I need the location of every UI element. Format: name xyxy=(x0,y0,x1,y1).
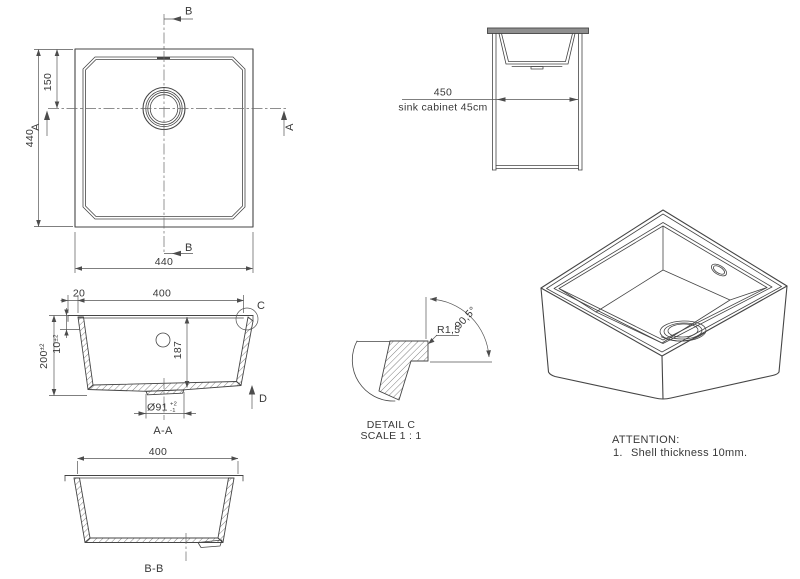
iso-rim-outer xyxy=(541,210,787,356)
dim-text-200: 200±2 xyxy=(38,343,50,369)
aa-dim-400: 400 xyxy=(78,288,244,314)
drain-stub xyxy=(531,67,543,70)
detail-scale: SCALE 1 : 1 xyxy=(360,430,421,442)
attention-heading: ATTENTION: xyxy=(612,434,680,446)
aa-overflow-hole xyxy=(156,333,170,347)
section-label-a-right: A xyxy=(284,123,296,131)
detail-c-letter: C xyxy=(257,300,265,312)
section-marker-a-right: A xyxy=(281,111,296,137)
aa-dim-187: 187 xyxy=(172,317,187,388)
iso-body xyxy=(541,286,787,399)
section-label-b-bottom: B xyxy=(185,242,193,254)
section-marker-b-top: B xyxy=(164,6,193,22)
section-aa-title: A-A xyxy=(153,425,173,437)
dim-text-10: 10±2 xyxy=(51,334,63,354)
isometric-view xyxy=(541,210,787,399)
dim-text-drain: Ø91+2-1 xyxy=(147,402,177,415)
sink-drawing-svg: B B A A 440 150 xyxy=(0,0,800,579)
cabinet-view: 450 sink cabinet 45cm xyxy=(398,28,588,170)
bb-left-wall xyxy=(74,478,90,543)
bb-dim-400: 400 xyxy=(78,446,239,474)
aa-dim-drain: Ø91+2-1 xyxy=(134,392,196,419)
dim-text-150: 150 xyxy=(42,73,54,91)
section-bb-title: B-B xyxy=(144,563,163,575)
front-view: B B A A 440 150 xyxy=(24,6,296,274)
view-label-d: D xyxy=(259,393,267,405)
dim-text-400-aa: 400 xyxy=(153,288,171,300)
cabinet-body xyxy=(493,34,583,171)
attention-item-number: 1. xyxy=(613,447,623,459)
iso-drain xyxy=(660,320,707,342)
technical-drawing-sheet: B B A A 440 150 xyxy=(0,0,800,579)
dim-450: 450 sink cabinet 45cm xyxy=(398,87,578,114)
aa-view-arrow-d: D xyxy=(249,385,267,409)
iso-overflow-hole xyxy=(709,262,728,279)
dim-text-450: 450 xyxy=(434,87,452,99)
aa-left-wall xyxy=(78,317,93,390)
section-marker-b-bottom: B xyxy=(164,242,193,256)
aa-right-wall xyxy=(237,317,254,386)
sink-bowl-profile xyxy=(499,34,575,70)
attention-note: ATTENTION: 1. Shell thickness 10mm. xyxy=(612,434,747,459)
dim-text-20: 20 xyxy=(73,288,85,300)
dim-text-187: 187 xyxy=(172,341,184,359)
dim-text-400-bb: 400 xyxy=(149,446,167,458)
bb-right-wall xyxy=(218,478,234,543)
attention-item-text: Shell thickness 10mm. xyxy=(631,447,747,459)
detail-c-view: 90,5° R1,5 DETAIL C SCALE 1 : 1 xyxy=(352,297,492,442)
aa-dim-10: 10±2 xyxy=(51,308,80,354)
detail-radius-dim: R1,5 xyxy=(428,324,460,344)
dim-text-radius: R1,5 xyxy=(437,324,460,336)
section-aa: 20 400 200±2 10±2 187 xyxy=(38,288,267,438)
cabinet-caption: sink cabinet 45cm xyxy=(398,102,487,114)
iso-bowl-floor xyxy=(596,270,730,343)
dim-text-440-bottom: 440 xyxy=(155,256,173,268)
dim-text-440-left: 440 xyxy=(24,129,36,147)
countertop xyxy=(488,28,589,34)
section-label-b-top: B xyxy=(185,6,193,18)
detail-corner-section xyxy=(379,341,428,400)
dim-150: 150 xyxy=(42,50,57,109)
aa-bottom xyxy=(88,382,241,392)
section-bb: 400 B-B xyxy=(65,446,243,575)
